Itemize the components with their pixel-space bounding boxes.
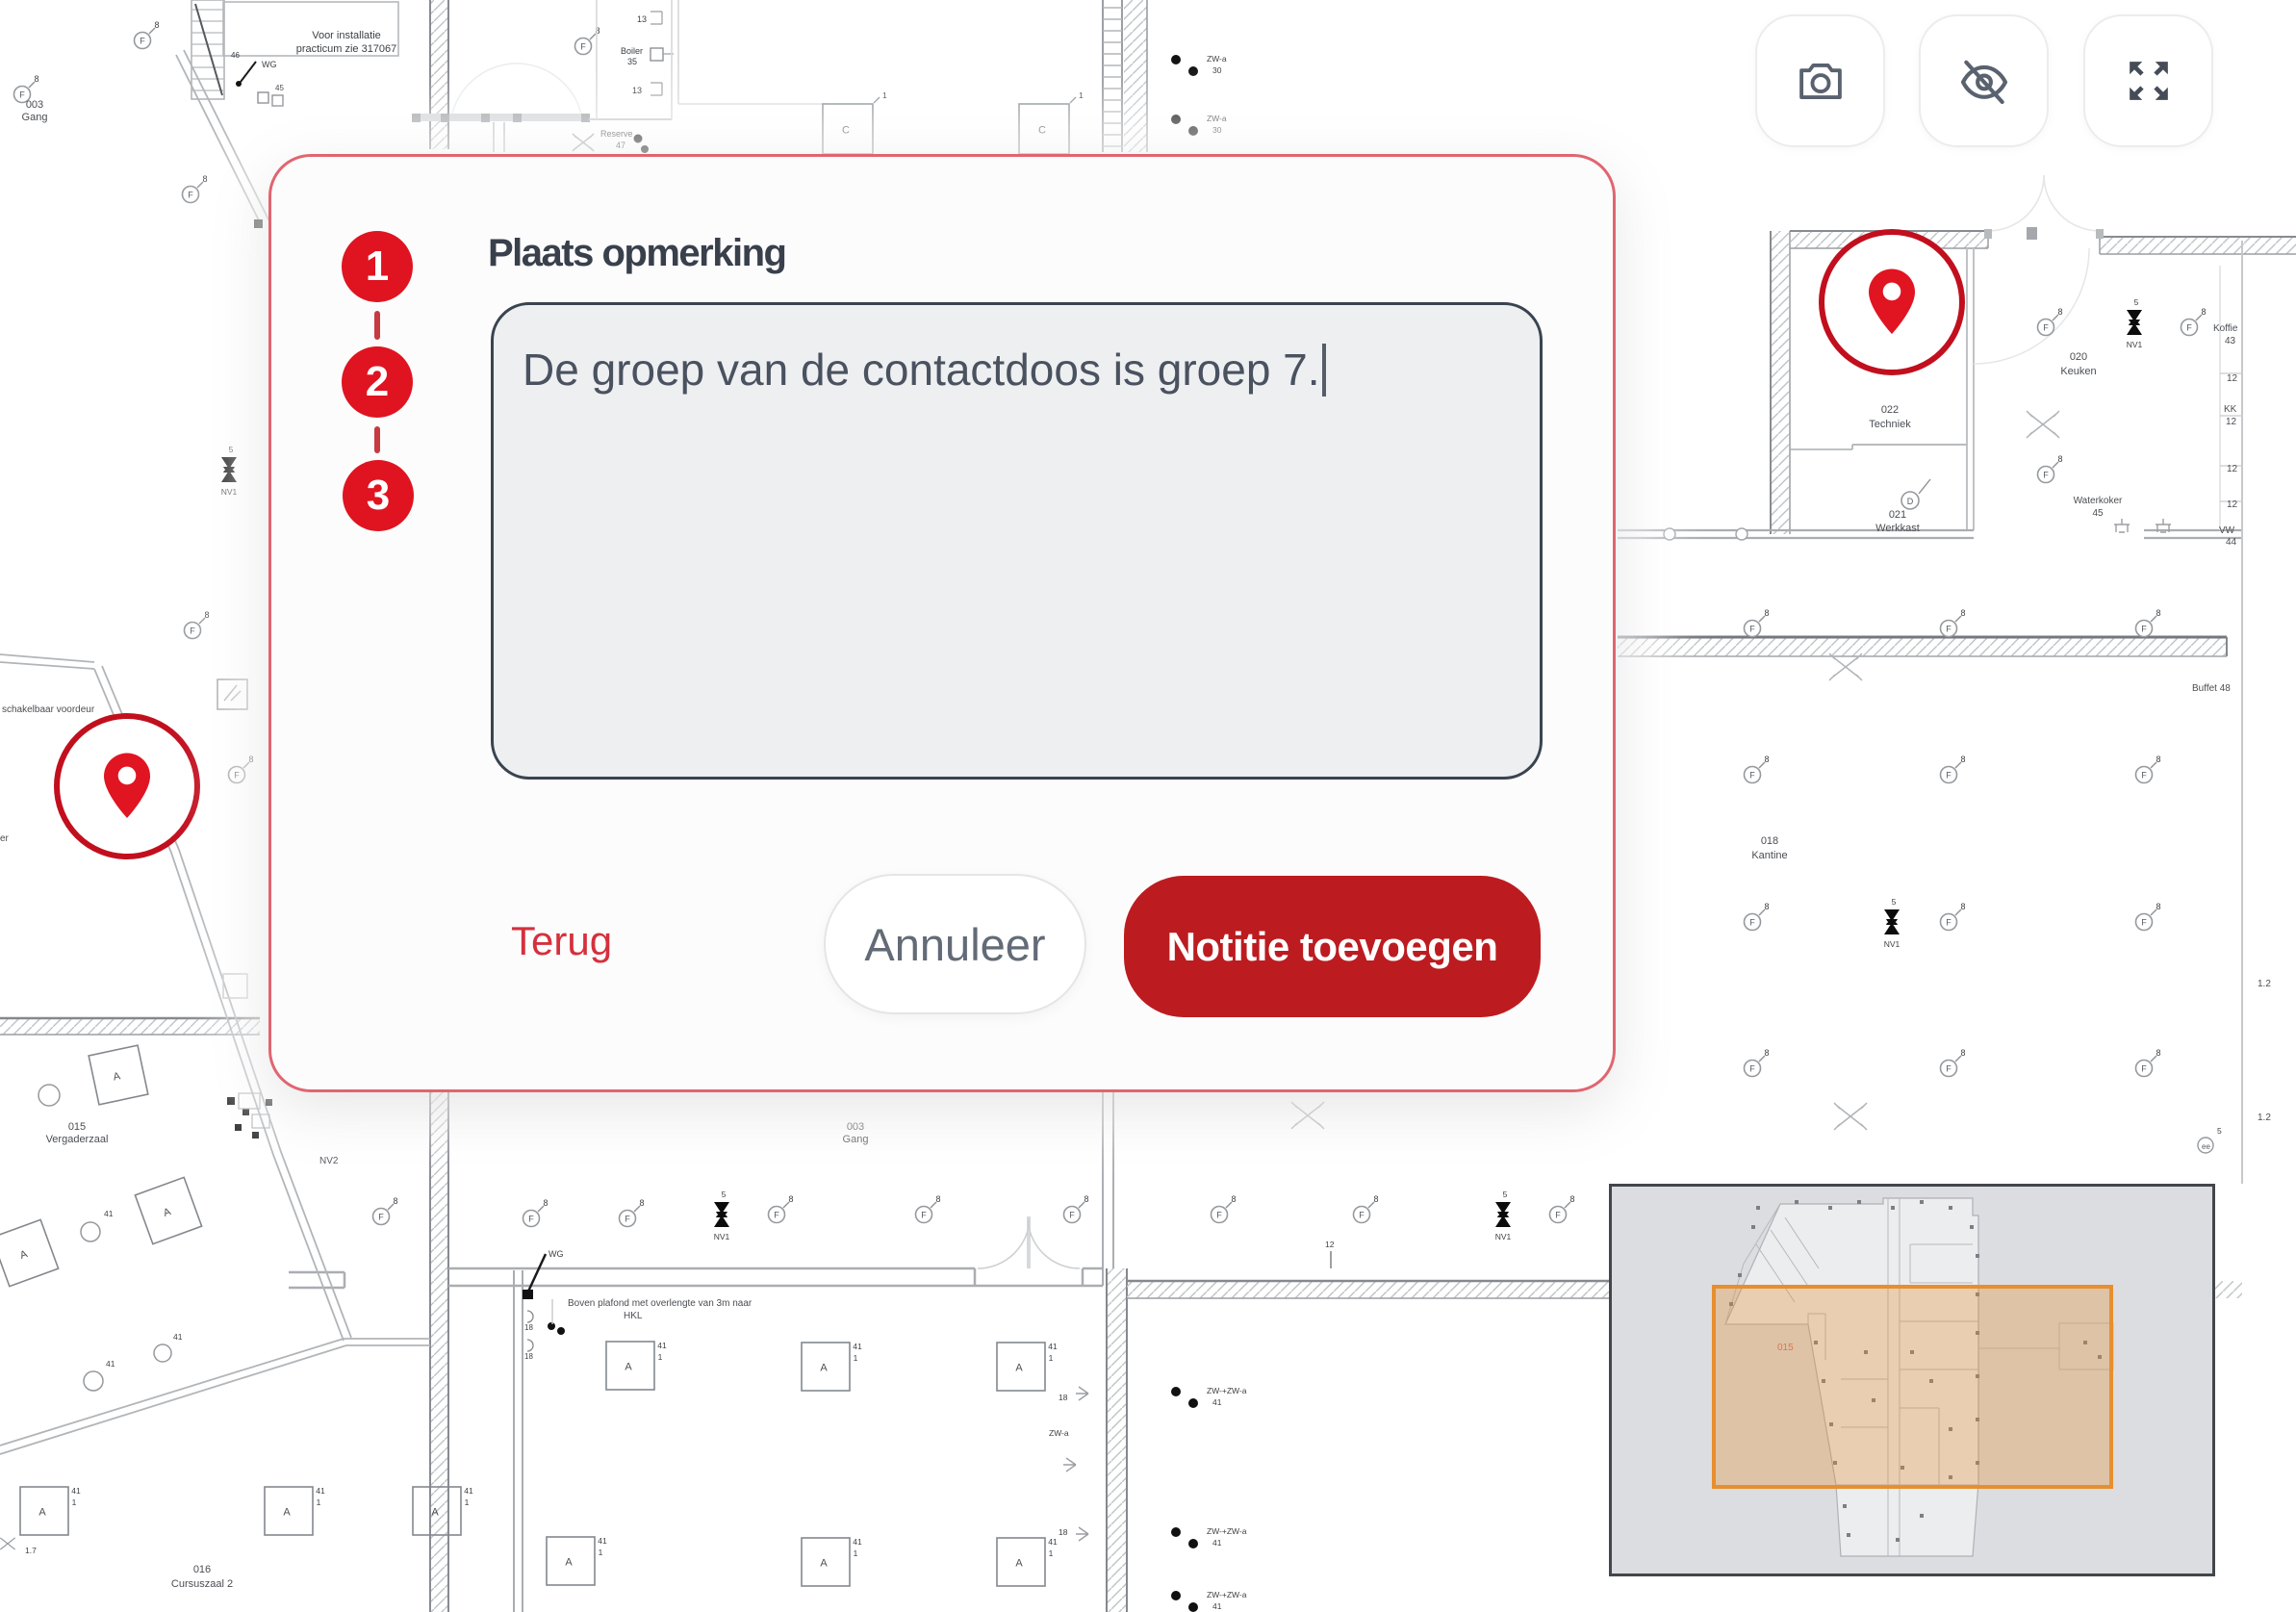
svg-text:1.2: 1.2 xyxy=(2258,1113,2271,1123)
svg-text:12: 12 xyxy=(2227,373,2238,384)
svg-text:12: 12 xyxy=(1325,1240,1335,1249)
svg-text:Cursuszaal 2: Cursuszaal 2 xyxy=(171,1578,233,1590)
svg-text:Waterkoker: Waterkoker xyxy=(2074,496,2123,506)
svg-text:VW: VW xyxy=(2219,525,2235,536)
svg-text:ZW-a: ZW-a xyxy=(1207,54,1227,64)
svg-text:schakelbaar voordeur: schakelbaar voordeur xyxy=(2,704,95,715)
svg-text:ZW-+ZW-a: ZW-+ZW-a xyxy=(1207,1386,1247,1395)
svg-text:35: 35 xyxy=(627,57,637,66)
svg-text:Keuken: Keuken xyxy=(2060,366,2096,377)
svg-text:41: 41 xyxy=(173,1332,183,1342)
svg-text:D: D xyxy=(1907,497,1914,506)
svg-text:18: 18 xyxy=(1059,1393,1068,1402)
svg-text:13: 13 xyxy=(637,14,647,24)
svg-text:021: 021 xyxy=(1889,509,1906,521)
svg-text:45: 45 xyxy=(275,84,284,92)
svg-text:41: 41 xyxy=(1212,1397,1222,1407)
svg-text:ZW-+ZW-a: ZW-+ZW-a xyxy=(1207,1590,1247,1599)
svg-text:41: 41 xyxy=(1212,1538,1222,1548)
svg-text:41: 41 xyxy=(104,1209,114,1218)
svg-text:44: 44 xyxy=(2226,537,2237,548)
svg-text:KK: KK xyxy=(2224,404,2237,415)
svg-text:Gang: Gang xyxy=(22,112,48,123)
svg-text:1.7: 1.7 xyxy=(25,1546,37,1555)
svg-text:er: er xyxy=(0,833,10,844)
svg-text:ZW-+ZW-a: ZW-+ZW-a xyxy=(1207,1526,1247,1536)
svg-text:A: A xyxy=(162,1206,173,1219)
svg-text:ee: ee xyxy=(2202,1142,2210,1151)
svg-text:13: 13 xyxy=(632,86,642,95)
svg-text:Kantine: Kantine xyxy=(1751,850,1787,861)
svg-text:5: 5 xyxy=(2217,1126,2222,1136)
svg-text:18: 18 xyxy=(524,1323,533,1332)
svg-text:45: 45 xyxy=(2092,508,2104,519)
svg-text:Koffie: Koffie xyxy=(2213,323,2238,334)
svg-text:015: 015 xyxy=(68,1121,86,1133)
svg-text:12: 12 xyxy=(2226,417,2237,427)
svg-text:HKL: HKL xyxy=(624,1311,643,1321)
svg-text:018: 018 xyxy=(1761,835,1778,847)
svg-text:Vergaderzaal: Vergaderzaal xyxy=(46,1134,109,1145)
svg-text:30: 30 xyxy=(1212,65,1222,75)
svg-text:020: 020 xyxy=(2070,351,2087,363)
svg-text:A: A xyxy=(18,1248,30,1262)
svg-text:ZW-a: ZW-a xyxy=(1049,1428,1069,1438)
svg-text:Buffet 48: Buffet 48 xyxy=(2192,683,2231,694)
svg-text:NV2: NV2 xyxy=(319,1156,339,1166)
svg-text:Werkkast: Werkkast xyxy=(1875,523,1920,534)
svg-text:Voor installatie: Voor installatie xyxy=(312,30,381,41)
svg-text:WG: WG xyxy=(548,1249,564,1259)
svg-text:WG: WG xyxy=(262,60,277,69)
svg-text:46: 46 xyxy=(231,51,240,60)
svg-text:Techniek: Techniek xyxy=(1869,419,1911,430)
svg-text:41: 41 xyxy=(1212,1601,1222,1611)
svg-text:1.2: 1.2 xyxy=(2258,979,2271,989)
svg-text:practicum zie 317067: practicum zie 317067 xyxy=(296,43,397,55)
svg-text:12: 12 xyxy=(2227,464,2238,474)
svg-text:18: 18 xyxy=(524,1352,533,1361)
svg-text:Boven plafond met overlengte v: Boven plafond met overlengte van 3m naar xyxy=(568,1298,753,1309)
svg-text:43: 43 xyxy=(2225,336,2236,346)
svg-text:12: 12 xyxy=(2227,499,2238,510)
svg-text:003: 003 xyxy=(26,99,43,111)
svg-text:022: 022 xyxy=(1881,404,1899,416)
svg-text:A: A xyxy=(113,1070,122,1083)
svg-text:18: 18 xyxy=(1059,1527,1068,1537)
svg-text:41: 41 xyxy=(106,1359,115,1369)
svg-text:Boiler: Boiler xyxy=(621,46,643,56)
svg-text:016: 016 xyxy=(193,1564,211,1575)
